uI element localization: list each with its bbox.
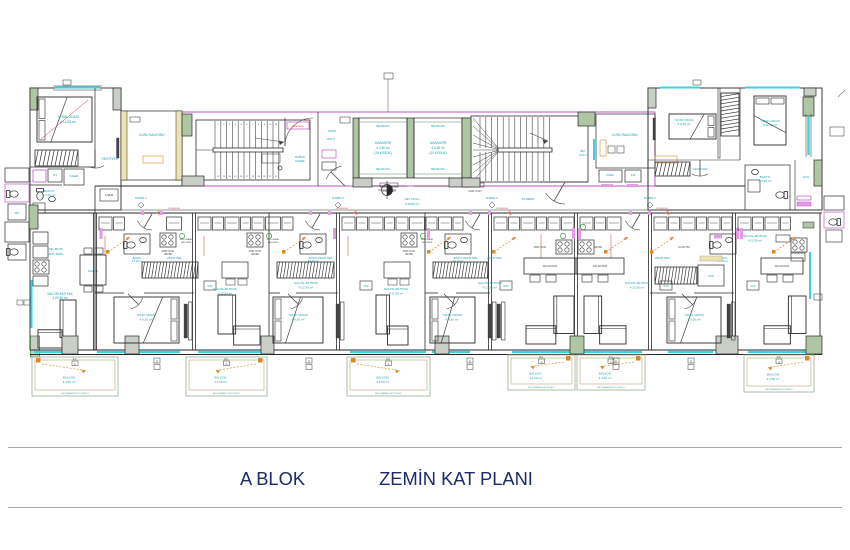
svg-text:(10 KISILIK): (10 KISILIK) — [429, 151, 446, 155]
svg-text:SALON+MUTFAK: SALON+MUTFAK — [625, 281, 649, 285]
svg-text:OVG: OVG — [363, 285, 368, 288]
svg-text:ADA MUTFAK: ADA MUTFAK — [593, 265, 608, 268]
svg-text:YATAK ODASI: YATAK ODASI — [442, 313, 462, 317]
svg-text:4.22.50 m²: 4.22.50 m² — [299, 286, 313, 290]
svg-text:4.9.20 m²: 4.9.20 m² — [678, 122, 691, 126]
svg-text:4.22.50 m²: 4.22.50 m² — [389, 292, 403, 296]
svg-text:A: A — [778, 360, 780, 364]
svg-text:4.29.50 m²: 4.29.50 m² — [52, 296, 67, 300]
svg-text:GRUBU: GRUBU — [405, 254, 414, 256]
svg-text:K.B: K.B — [631, 173, 635, 177]
svg-text:VESTIYER: VESTIYER — [167, 256, 183, 260]
svg-text:4.4.50 m²: 4.4.50 m² — [431, 146, 444, 150]
svg-text:NET HOLU: NET HOLU — [404, 197, 419, 201]
svg-text:VESTIYER: VESTIYER — [102, 157, 119, 161]
svg-text:4.6.30 m²: 4.6.30 m² — [759, 179, 772, 183]
svg-text:DAIRE 4: DAIRE 4 — [644, 196, 656, 200]
svg-text:DAIRE 3: DAIRE 3 — [486, 196, 498, 200]
svg-text:MIL MUTF: MIL MUTF — [49, 247, 63, 251]
svg-text:4.22.50 m²: 4.22.50 m² — [218, 292, 232, 296]
svg-text:R: R — [615, 361, 617, 364]
svg-text:YATAK ODASI: YATAK ODASI — [288, 313, 308, 317]
svg-text:BETONARME SETON.ALTI: BETONARME SETON.ALTI — [528, 386, 555, 389]
svg-text:BEY: BEY — [580, 149, 585, 153]
svg-text:SALON+MUTFAK: SALON+MUTFAK — [743, 234, 767, 238]
svg-text:BETONARME SETON.ALTI: BETONARME SETON.ALTI — [375, 392, 402, 395]
svg-text:R: R — [469, 361, 471, 364]
svg-text:ASANSÖR: ASANSÖR — [375, 141, 392, 145]
svg-text:(10 KISILIK): (10 KISILIK) — [374, 151, 391, 155]
svg-text:4.9.20 m²: 4.9.20 m² — [446, 318, 459, 322]
svg-text:OVG: OVG — [750, 285, 755, 288]
svg-text:K.MEDI: K.MEDI — [105, 194, 114, 197]
svg-text:KURU BALKONU: KURU BALKONU — [139, 133, 165, 137]
svg-text:SALON+MUTFAK: SALON+MUTFAK — [213, 287, 237, 291]
svg-text:OVG: OVG — [708, 274, 714, 278]
svg-text:A: A — [388, 362, 390, 366]
svg-text:ASM. KAPI: ASM. KAPI — [469, 189, 482, 193]
svg-text:GRU MRS: GRU MRS — [422, 242, 433, 244]
svg-text:4.35.80 m²: 4.35.80 m² — [405, 202, 419, 206]
svg-text:4.9.20 m²: 4.9.20 m² — [688, 318, 701, 322]
svg-text:BETONARME SETON.ALTI: BETONARME SETON.ALTI — [766, 388, 793, 391]
svg-text:VESTIYER: VESTIYER — [318, 256, 334, 260]
svg-text:DAIRE: DAIRE — [295, 159, 304, 163]
svg-text:YATAK ODASI: YATAK ODASI — [57, 115, 79, 119]
svg-text:GRU MRS: GRU MRS — [268, 242, 279, 244]
svg-text:R: R — [690, 361, 692, 364]
svg-text:BETONARME SETON.ALTI: BETONARME SETON.ALTI — [213, 392, 240, 395]
svg-text:MEVZUATA: MEVZUATA — [431, 167, 445, 171]
svg-text:4.11.50 m²: 4.11.50 m² — [60, 120, 77, 124]
svg-text:ADA MUTFAK: ADA MUTFAK — [543, 265, 558, 268]
svg-text:4.4.50 m²: 4.4.50 m² — [376, 146, 389, 150]
svg-text:R.K.: R.K. — [386, 359, 391, 361]
svg-text:SALON+MUTFAK: SALON+MUTFAK — [478, 281, 502, 285]
svg-text:ASANSÖR: ASANSÖR — [430, 141, 447, 145]
svg-text:MND OCAK: MND OCAK — [249, 250, 262, 253]
svg-text:ADA MUTFAK: ADA MUTFAK — [775, 265, 790, 268]
svg-text:YATAK ODASI: YATAK ODASI — [684, 313, 704, 317]
svg-text:MEVZUATA: MEVZUATA — [376, 167, 390, 171]
svg-text:BALKON: BALKON — [599, 372, 611, 376]
svg-text:DAIRE 1: DAIRE 1 — [135, 196, 147, 200]
svg-text:4.22.50 m²: 4.22.50 m² — [748, 239, 762, 243]
svg-text:4.4.20 m²: 4.4.20 m² — [43, 193, 56, 197]
svg-text:A: A — [610, 360, 612, 364]
svg-text:VESTIYER: VESTIYER — [693, 167, 709, 171]
svg-text:4.22.50 m²: 4.22.50 m² — [483, 286, 497, 290]
svg-text:A: A — [226, 362, 228, 366]
svg-text:BINA GIRIS: BINA GIRIS — [292, 125, 304, 128]
svg-text:4.11.50 m²: 4.11.50 m² — [763, 123, 777, 127]
svg-text:VESTIYER: VESTIYER — [487, 256, 503, 260]
svg-text:R.K.: R.K. — [777, 357, 782, 359]
svg-text:A BLOK: A BLOK — [240, 468, 305, 489]
svg-text:R.K.: R.K. — [224, 359, 229, 361]
svg-text:MEVZUATA: MEVZUATA — [431, 124, 445, 128]
svg-text:4.9.20 m²: 4.9.20 m² — [292, 318, 305, 322]
svg-text:4.4.50 m²: 4.4.50 m² — [214, 380, 227, 384]
svg-text:4.4.50 m²: 4.4.50 m² — [529, 376, 542, 380]
svg-text:4.4.20 m²: 4.4.20 m² — [308, 260, 319, 263]
svg-text:AS MERD: AS MERD — [522, 197, 535, 201]
svg-text:R.K.: R.K. — [73, 359, 78, 361]
svg-text:VESTIYER: VESTIYER — [463, 256, 479, 260]
svg-text:90 HELECE: 90 HELECE — [656, 208, 668, 210]
svg-text:OVG: OVG — [503, 285, 508, 288]
svg-text:R.K.: R.K. — [539, 357, 544, 359]
svg-text:R: R — [308, 361, 310, 364]
svg-text:BALKON: BALKON — [529, 372, 541, 376]
svg-text:4.4.50 m²: 4.4.50 m² — [599, 376, 612, 380]
svg-text:GY: GY — [53, 173, 57, 177]
svg-text:ANK.TEZG: ANK.TEZG — [48, 252, 64, 256]
svg-text:SALON+MUTFAK: SALON+MUTFAK — [294, 281, 318, 285]
svg-text:KURU BALKONU: KURU BALKONU — [612, 133, 638, 137]
svg-text:4.4.20 m²: 4.4.20 m² — [132, 260, 143, 263]
svg-text:BALKON: BALKON — [376, 376, 388, 380]
svg-text:4.4.50 m²: 4.4.50 m² — [376, 380, 389, 384]
svg-text:4.4.50 m²: 4.4.50 m² — [767, 377, 780, 381]
svg-text:MND OCAK: MND OCAK — [162, 250, 175, 253]
svg-text:4.22.50 m²: 4.22.50 m² — [630, 286, 644, 290]
svg-text:KILER: KILER — [70, 174, 80, 178]
svg-text:ZEMİN KAT PLANI: ZEMİN KAT PLANI — [379, 468, 533, 489]
svg-text:MEVZUATA: MEVZUATA — [376, 124, 390, 128]
svg-text:OVG: OVG — [663, 285, 668, 288]
svg-text:GRUBU: GRUBU — [251, 254, 260, 256]
svg-text:BETONARME SETON.ALTI: BETONARME SETON.ALTI — [62, 392, 89, 395]
svg-text:AL MUTFA: AL MUTFA — [678, 246, 690, 249]
svg-text:4.9.20 m²: 4.9.20 m² — [140, 318, 153, 322]
svg-text:HOLU: HOLU — [327, 137, 335, 141]
svg-text:SALON+MUTFAK: SALON+MUTFAK — [384, 287, 408, 291]
svg-text:WC: WC — [15, 211, 21, 215]
svg-text:GRU MRS: GRU MRS — [181, 242, 192, 244]
svg-text:HOLU: HOLU — [579, 153, 586, 157]
svg-text:4.4.50 m²: 4.4.50 m² — [63, 380, 76, 384]
svg-text:YATAK ODASI: YATAK ODASI — [136, 313, 156, 317]
svg-text:VESTIYER: VESTIYER — [655, 256, 671, 260]
svg-text:BALKON: BALKON — [214, 376, 226, 380]
svg-text:OVG: OVG — [803, 175, 810, 179]
svg-text:DAIRE 2: DAIRE 2 — [332, 196, 344, 200]
svg-text:MND OCAK: MND OCAK — [534, 246, 547, 249]
svg-text:BALKON: BALKON — [63, 376, 75, 380]
svg-text:90 HELECE: 90 HELECE — [336, 208, 348, 210]
svg-text:GRUBU: GRUBU — [594, 247, 603, 249]
svg-text:BETONARME SETON.ALTI: BETONARME SETON.ALTI — [598, 386, 625, 389]
svg-text:A: A — [541, 360, 543, 364]
svg-text:R: R — [156, 361, 158, 364]
svg-text:MND OCAK: MND OCAK — [403, 250, 416, 253]
svg-text:GIRIS: GIRIS — [328, 129, 336, 133]
svg-text:90 HELECE: 90 HELECE — [496, 208, 508, 210]
svg-text:KLIMA: KLIMA — [606, 173, 614, 177]
svg-text:A: A — [74, 362, 76, 366]
svg-text:BALKON: BALKON — [767, 373, 779, 377]
svg-text:90 HELECE: 90 HELECE — [168, 208, 180, 210]
